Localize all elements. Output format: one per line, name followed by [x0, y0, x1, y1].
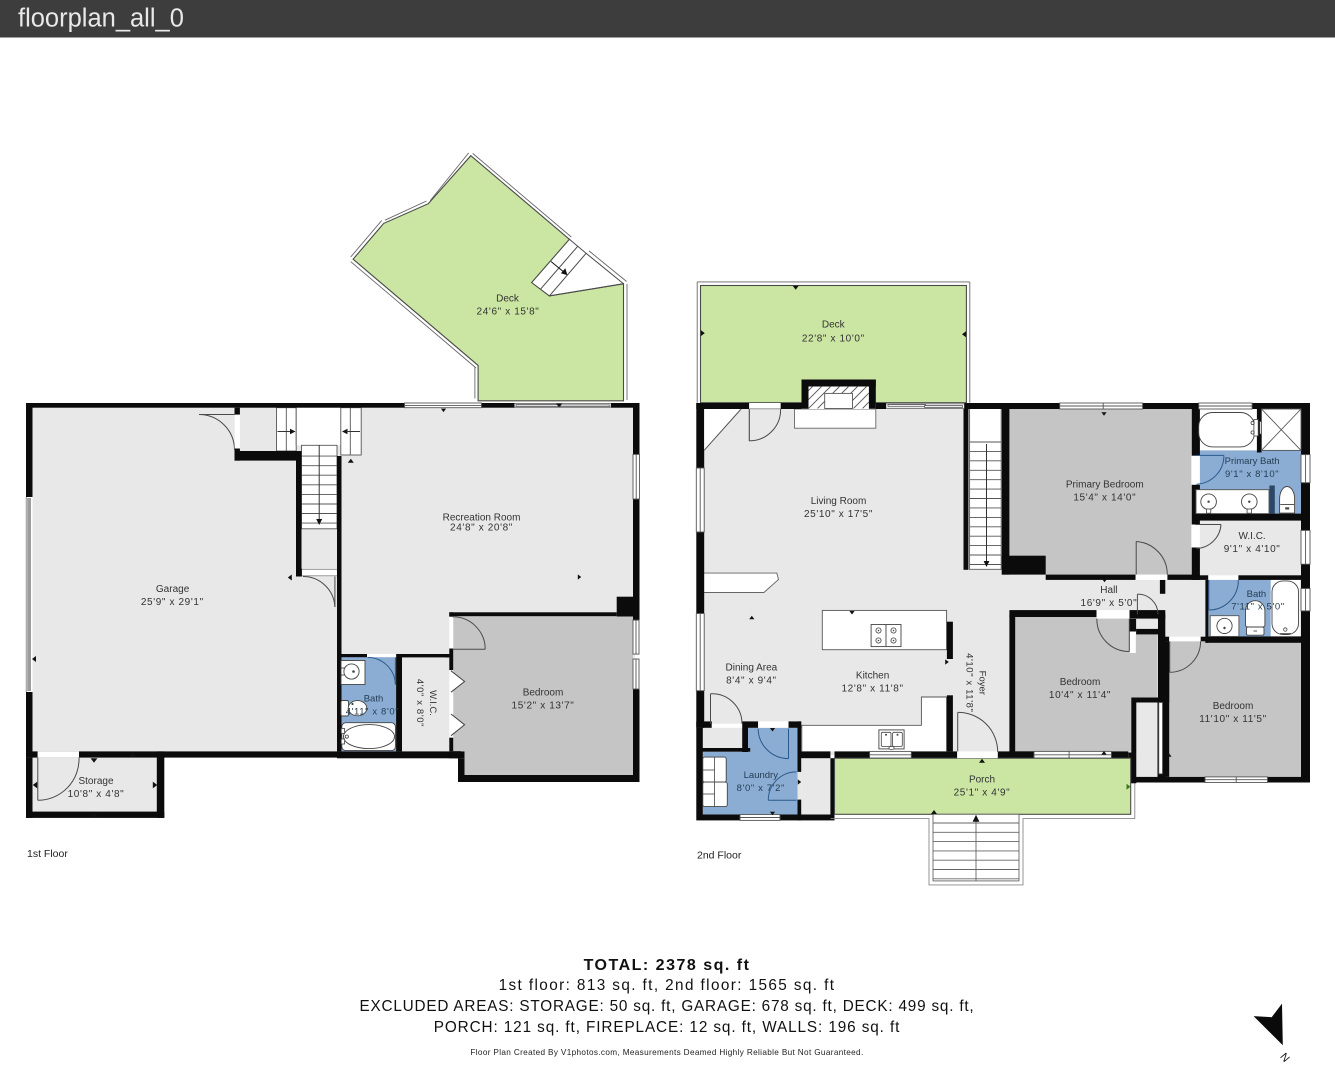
svg-text:Bath: Bath [364, 694, 384, 705]
svg-text:10'4" x 11'4": 10'4" x 11'4" [1049, 690, 1111, 701]
svg-text:PORCH: 121 sq. ft, FIREPLACE:: PORCH: 121 sq. ft, FIREPLACE: 12 sq. ft,… [434, 1019, 901, 1036]
svg-text:8'4" x 9'4": 8'4" x 9'4" [726, 676, 777, 687]
svg-text:Bedroom: Bedroom [523, 688, 564, 699]
svg-text:Dining Area: Dining Area [726, 663, 778, 674]
svg-text:TOTAL: 2378 sq. ft: TOTAL: 2378 sq. ft [584, 957, 751, 974]
svg-text:Deck: Deck [496, 294, 520, 305]
svg-text:11'10" x 11'5": 11'10" x 11'5" [1199, 714, 1267, 725]
svg-text:Storage: Storage [78, 776, 113, 787]
svg-text:Living Room: Living Room [811, 496, 867, 507]
svg-text:22'8" x 10'0": 22'8" x 10'0" [802, 334, 865, 345]
svg-text:4'11" x 8'0": 4'11" x 8'0" [346, 707, 400, 718]
svg-text:12'8" x 11'8": 12'8" x 11'8" [842, 684, 904, 695]
svg-text:Floor Plan Created By V1photos: Floor Plan Created By V1photos.com, Meas… [470, 1048, 863, 1057]
svg-text:4'10" x 11'8": 4'10" x 11'8" [964, 653, 975, 712]
svg-text:9'1" x 8'10": 9'1" x 8'10" [1225, 469, 1279, 480]
svg-text:Hall: Hall [1100, 585, 1117, 596]
svg-text:16'9" x 5'0": 16'9" x 5'0" [1081, 598, 1138, 609]
svg-text:Bedroom: Bedroom [1213, 701, 1254, 712]
svg-text:24'8" x 20'8": 24'8" x 20'8" [450, 523, 513, 534]
svg-text:Foyer: Foyer [977, 671, 988, 695]
svg-text:9'1" x 4'10": 9'1" x 4'10" [1224, 544, 1281, 555]
svg-text:25'9" x 29'1": 25'9" x 29'1" [141, 597, 204, 608]
svg-text:24'6" x 15'8": 24'6" x 15'8" [477, 307, 540, 318]
svg-text:15'4" x 14'0": 15'4" x 14'0" [1073, 493, 1136, 504]
svg-text:1st Floor: 1st Floor [27, 848, 68, 860]
svg-text:EXCLUDED AREAS: STORAGE: 50 sq: EXCLUDED AREAS: STORAGE: 50 sq. ft, GARA… [360, 998, 975, 1015]
svg-text:Laundry: Laundry [744, 770, 779, 781]
svg-text:15'2" x 13'7": 15'2" x 13'7" [512, 701, 575, 712]
svg-text:Garage: Garage [156, 584, 190, 595]
svg-text:Bedroom: Bedroom [1060, 677, 1101, 688]
svg-text:1st floor: 813 sq. ft, 2nd flo: 1st floor: 813 sq. ft, 2nd floor: 1565 s… [499, 977, 836, 994]
svg-text:Deck: Deck [822, 320, 846, 331]
svg-text:Primary Bath: Primary Bath [1225, 456, 1280, 467]
svg-text:25'1" x 4'9": 25'1" x 4'9" [954, 788, 1011, 799]
svg-text:Primary Bedroom: Primary Bedroom [1066, 480, 1144, 491]
svg-text:floorplan_all_0: floorplan_all_0 [18, 5, 184, 33]
svg-text:10'8" x 4'8": 10'8" x 4'8" [68, 789, 125, 800]
svg-text:Kitchen: Kitchen [856, 670, 889, 681]
svg-text:W.I.C.: W.I.C. [1238, 531, 1265, 542]
svg-text:W.I.C.: W.I.C. [427, 690, 438, 716]
svg-text:Bath: Bath [1247, 589, 1267, 600]
svg-text:7'11" x 5'0": 7'11" x 5'0" [1231, 602, 1285, 613]
svg-text:25'10" x 17'5": 25'10" x 17'5" [804, 509, 873, 520]
svg-text:4'0" x 8'0": 4'0" x 8'0" [414, 679, 425, 727]
svg-text:2nd Floor: 2nd Floor [697, 850, 742, 862]
svg-text:Porch: Porch [969, 775, 995, 786]
svg-text:8'0" x 7'2": 8'0" x 7'2" [737, 783, 785, 794]
